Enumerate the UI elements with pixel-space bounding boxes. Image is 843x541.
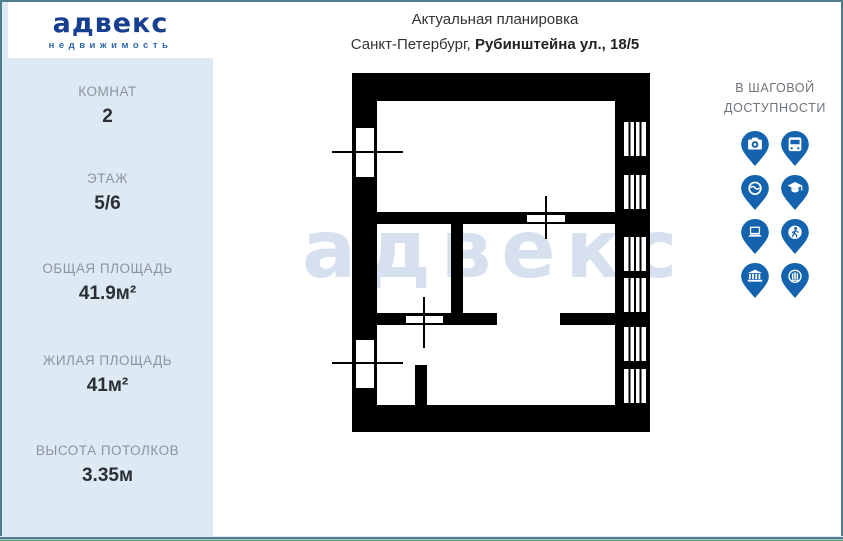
stat-value: 41м² — [2, 375, 213, 397]
stat-living-area: ЖИЛАЯ ПЛОЩАДЬ 41м² — [2, 353, 213, 397]
logo-wordmark: адвекс — [53, 10, 169, 37]
stat-value: 2 — [2, 106, 213, 128]
wall-lower-right — [560, 313, 617, 325]
stat-total-area: ОБЩАЯ ПЛОЩАДЬ 41.9м² — [2, 261, 213, 305]
agency-logo: адвекс недвижимость — [8, 2, 213, 58]
stat-label: ОБЩАЯ ПЛОЩАДЬ — [2, 261, 213, 276]
stat-value: 41.9м² — [2, 283, 213, 305]
steering-wheel-icon — [741, 175, 769, 210]
nearby-title: В ШАГОВОЙ ДОСТУПНОСТИ — [712, 78, 838, 118]
stat-value: 3.35м — [2, 465, 213, 487]
property-sidebar: адвекс недвижимость КОМНАТ 2 ЭТАЖ 5/6 ОБ… — [2, 2, 213, 536]
stat-label: КОМНАТ — [2, 84, 213, 99]
wall-bottom — [352, 405, 650, 432]
graduation-cap-icon — [781, 175, 809, 210]
stat-label: ЭТАЖ — [2, 171, 213, 186]
stat-floor: ЭТАЖ 5/6 — [2, 171, 213, 215]
bank-icon — [741, 263, 769, 298]
bus-icon — [781, 131, 809, 166]
plan-city: Санкт-Петербург, — [351, 36, 471, 53]
nearby-panel: В ШАГОВОЙ ДОСТУПНОСТИ — [712, 78, 838, 298]
columns-circle-icon — [781, 263, 809, 298]
camera-icon — [741, 131, 769, 166]
wall-stub — [415, 365, 427, 410]
floor-plan — [330, 70, 654, 438]
stat-value: 5/6 — [2, 193, 213, 215]
bottom-border-line — [0, 536, 843, 541]
stat-label: ВЫСОТА ПОТОЛКОВ — [2, 443, 213, 458]
stat-ceiling-height: ВЫСОТА ПОТОЛКОВ 3.35м — [2, 443, 213, 487]
wall-interior-vertical — [451, 212, 463, 325]
plan-title: Актуальная планировка — [280, 8, 710, 33]
window-left-bottom — [356, 340, 374, 388]
pedestrian-icon — [781, 219, 809, 254]
nearby-pin-grid — [741, 131, 809, 298]
laptop-icon — [741, 219, 769, 254]
wall-mid-horizontal — [377, 212, 617, 224]
page: { "sidebar": { "logo": "адвекс", "logo_s… — [0, 0, 843, 541]
plan-address-line: Санкт-Петербург, Рубинштейна ул., 18/5 — [280, 33, 710, 58]
stat-rooms: КОМНАТ 2 — [2, 84, 213, 128]
stat-label: ЖИЛАЯ ПЛОЩАДЬ — [2, 353, 213, 368]
nearby-title-line2: ДОСТУПНОСТИ — [712, 98, 838, 118]
plan-address: Рубинштейна ул., 18/5 — [475, 36, 639, 53]
page-header: Актуальная планировка Санкт-Петербург, Р… — [280, 8, 710, 58]
wall-top — [352, 73, 650, 101]
nearby-title-line1: В ШАГОВОЙ — [712, 78, 838, 98]
logo-subtitle: недвижимость — [49, 40, 173, 51]
